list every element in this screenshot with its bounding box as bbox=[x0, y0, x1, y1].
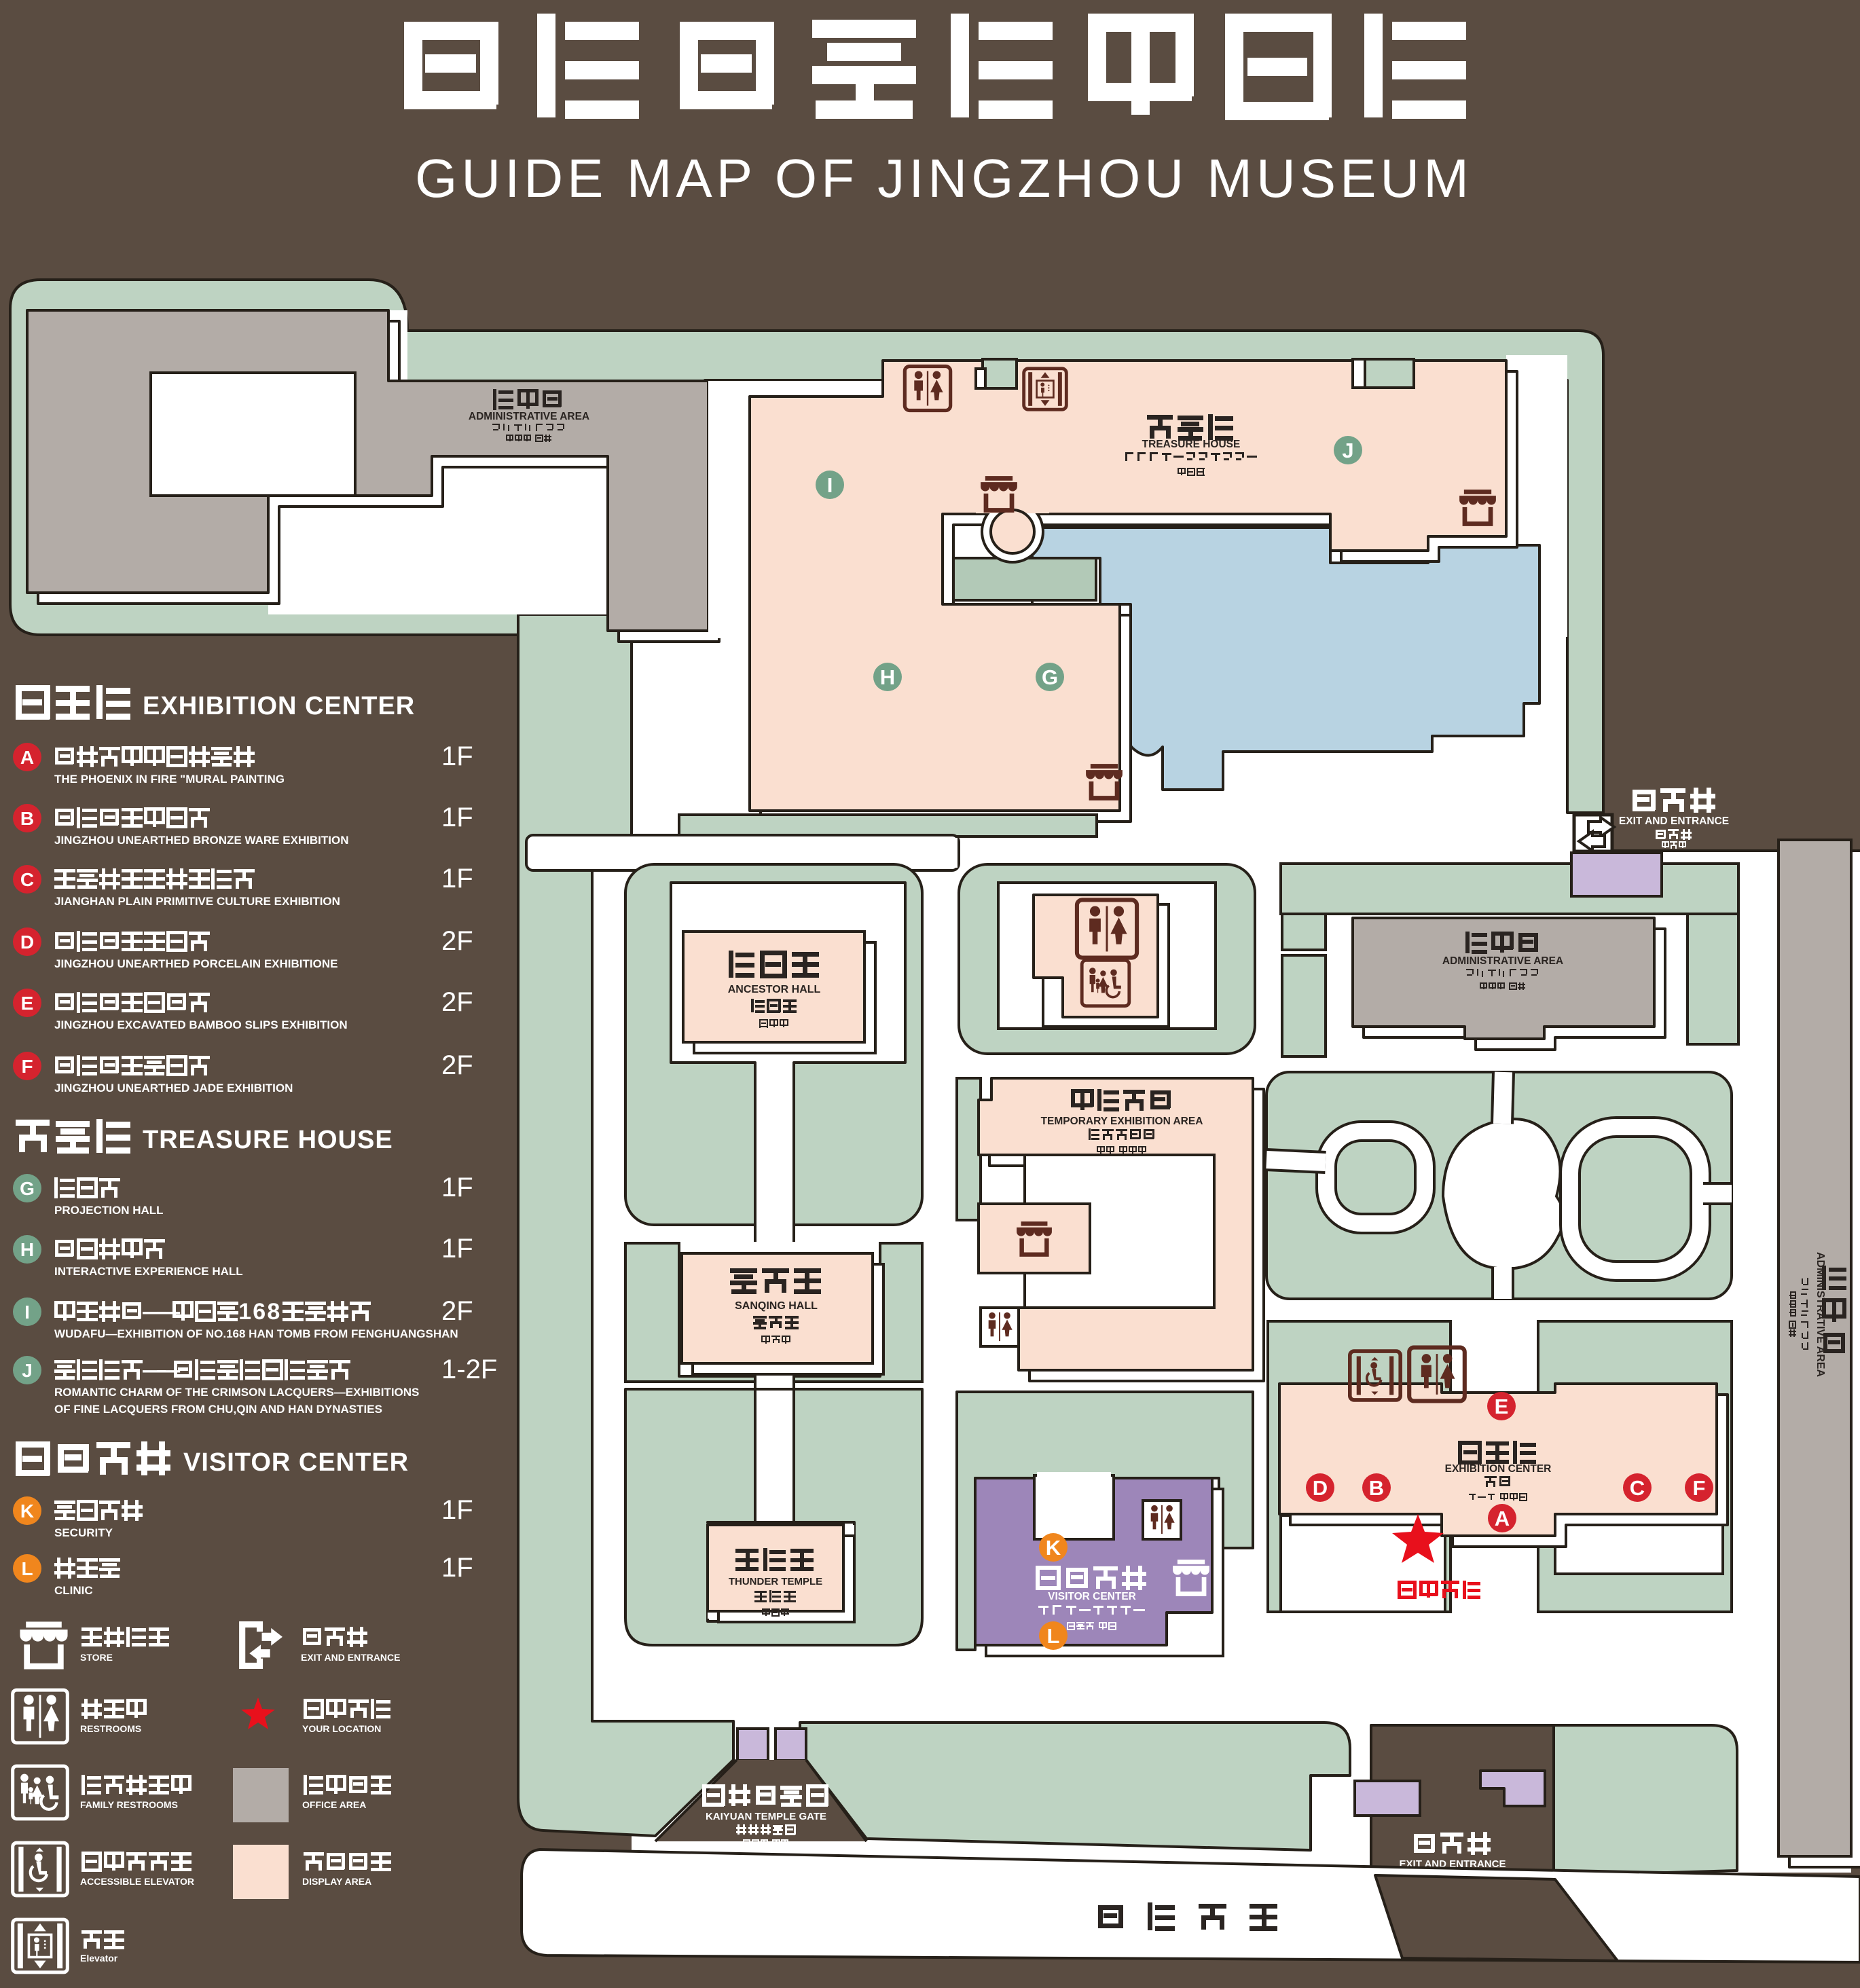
svg-text:VISITOR CENTER: VISITOR CENTER bbox=[183, 1448, 409, 1477]
svg-text:JINGZHOU EXCAVATED BAMBOO SLIP: JINGZHOU EXCAVATED BAMBOO SLIPS EXHIBITI… bbox=[54, 1018, 348, 1031]
svg-text:K: K bbox=[1046, 1536, 1061, 1560]
svg-text:THUNDER TEMPLE: THUNDER TEMPLE bbox=[729, 1576, 822, 1587]
svg-text:FAMILY RESTROOMS: FAMILY RESTROOMS bbox=[80, 1799, 178, 1810]
svg-text:G: G bbox=[20, 1178, 35, 1199]
svg-text:L: L bbox=[1047, 1624, 1060, 1648]
svg-text:C: C bbox=[20, 869, 34, 890]
svg-text:VISITOR CENTER: VISITOR CENTER bbox=[1048, 1591, 1136, 1602]
svg-text:PROJECTION HALL: PROJECTION HALL bbox=[54, 1204, 164, 1217]
svg-text:1F: 1F bbox=[441, 1495, 473, 1525]
svg-text:C: C bbox=[1630, 1476, 1645, 1500]
svg-text:2F: 2F bbox=[441, 1050, 473, 1080]
svg-text:F: F bbox=[1693, 1476, 1706, 1500]
svg-text:Elevator: Elevator bbox=[80, 1953, 118, 1964]
svg-text:E: E bbox=[21, 993, 34, 1014]
svg-text:F: F bbox=[21, 1056, 33, 1077]
svg-text:A: A bbox=[1495, 1507, 1510, 1530]
svg-text:SANQING HALL: SANQING HALL bbox=[735, 1300, 818, 1312]
svg-text:K: K bbox=[20, 1501, 34, 1522]
svg-text:1F: 1F bbox=[441, 741, 473, 771]
svg-text:J: J bbox=[1342, 439, 1353, 462]
svg-text:D: D bbox=[1313, 1476, 1328, 1500]
svg-text:1F: 1F bbox=[441, 1553, 473, 1583]
svg-text:6: 6 bbox=[253, 1299, 266, 1325]
svg-text:B: B bbox=[1369, 1476, 1384, 1500]
svg-text:1: 1 bbox=[238, 1299, 251, 1325]
svg-text:1F: 1F bbox=[441, 1173, 473, 1202]
svg-text:JIANGHAN PLAIN PRIMITIVE CULTU: JIANGHAN PLAIN PRIMITIVE CULTURE EXHIBIT… bbox=[54, 895, 340, 908]
svg-text:OF FINE LACQUERS FROM CHU,QIN: OF FINE LACQUERS FROM CHU,QIN AND HAN DY… bbox=[54, 1403, 382, 1416]
svg-text:2F: 2F bbox=[441, 926, 473, 956]
svg-text:RESTROOMS: RESTROOMS bbox=[80, 1723, 141, 1734]
svg-text:ANCESTOR HALL: ANCESTOR HALL bbox=[728, 984, 821, 995]
svg-text:GUIDE MAP OF JINGZHOU MUSEUM: GUIDE MAP OF JINGZHOU MUSEUM bbox=[415, 148, 1473, 208]
svg-text:ADMINISTRATIVE AREA: ADMINISTRATIVE AREA bbox=[469, 411, 589, 422]
svg-text:INTERACTIVE EXPERIENCE HALL: INTERACTIVE EXPERIENCE HALL bbox=[54, 1265, 243, 1278]
svg-text:ADMINISTRATIVE AREA: ADMINISTRATIVE AREA bbox=[1442, 955, 1563, 967]
svg-text:JINGZHOU UNEARTHED BRONZE WARE: JINGZHOU UNEARTHED BRONZE WARE EXHIBITIO… bbox=[54, 834, 349, 847]
svg-text:D: D bbox=[20, 932, 34, 953]
svg-text:TREASURE HOUSE: TREASURE HOUSE bbox=[1142, 439, 1241, 450]
svg-text:1F: 1F bbox=[441, 803, 473, 832]
svg-text:EXIT AND ENTRANCE: EXIT AND ENTRANCE bbox=[1619, 815, 1729, 827]
svg-text:TEMPORARY EXHIBITION AREA: TEMPORARY EXHIBITION AREA bbox=[1041, 1116, 1203, 1127]
svg-text:OFFICE AREA: OFFICE AREA bbox=[302, 1799, 366, 1810]
svg-text:ACCESSIBLE ELEVATOR: ACCESSIBLE ELEVATOR bbox=[80, 1876, 194, 1887]
svg-text:JINGZHOU UNEARTHED JADE EXHIBI: JINGZHOU UNEARTHED JADE EXHIBITION bbox=[54, 1082, 293, 1094]
svg-text:2F: 2F bbox=[441, 1296, 473, 1326]
svg-text:TREASURE HOUSE: TREASURE HOUSE bbox=[143, 1126, 393, 1154]
svg-text:ADMINISTRATIVE AREA: ADMINISTRATIVE AREA bbox=[1815, 1252, 1826, 1377]
svg-text:B: B bbox=[20, 808, 34, 829]
svg-text:SECURITY: SECURITY bbox=[54, 1526, 113, 1539]
svg-text:THE PHOENIX IN FIRE "MURAL PAI: THE PHOENIX IN FIRE "MURAL PAINTING bbox=[54, 773, 285, 786]
svg-text:DISPLAY AREA: DISPLAY AREA bbox=[302, 1876, 371, 1887]
svg-text:I: I bbox=[24, 1302, 30, 1323]
svg-text:8: 8 bbox=[267, 1299, 280, 1325]
svg-text:ROMANTIC CHARM OF THE CRIMSON: ROMANTIC CHARM OF THE CRIMSON LACQUERS—E… bbox=[54, 1386, 419, 1399]
svg-text:1F: 1F bbox=[441, 1234, 473, 1264]
svg-text:A: A bbox=[20, 747, 34, 768]
svg-text:L: L bbox=[21, 1558, 33, 1579]
svg-text:EXIT AND ENTRANCE: EXIT AND ENTRANCE bbox=[301, 1652, 401, 1663]
svg-text:1-2F: 1-2F bbox=[441, 1355, 497, 1384]
svg-text:J: J bbox=[22, 1360, 33, 1381]
svg-text:1F: 1F bbox=[441, 864, 473, 894]
svg-text:I: I bbox=[827, 473, 833, 497]
svg-text:STORE: STORE bbox=[80, 1652, 113, 1663]
svg-text:E: E bbox=[1495, 1395, 1509, 1418]
svg-text:2F: 2F bbox=[441, 987, 473, 1017]
svg-text:WUDAFU—EXHIBITION OF NO.168 HA: WUDAFU—EXHIBITION OF NO.168 HAN TOMB FRO… bbox=[54, 1327, 458, 1340]
svg-text:CLINIC: CLINIC bbox=[54, 1584, 93, 1597]
svg-text:KAIYUAN TEMPLE GATE: KAIYUAN TEMPLE GATE bbox=[706, 1811, 826, 1822]
svg-text:H: H bbox=[880, 665, 895, 689]
svg-text:JINGZHOU UNEARTHED PORCELAIN E: JINGZHOU UNEARTHED PORCELAIN EXHIBITIONE bbox=[54, 957, 338, 970]
svg-text:H: H bbox=[20, 1239, 34, 1260]
svg-text:EXHIBITION CENTER: EXHIBITION CENTER bbox=[143, 692, 415, 720]
svg-text:G: G bbox=[1042, 665, 1058, 689]
svg-text:EXHIBITION CENTER: EXHIBITION CENTER bbox=[1445, 1463, 1552, 1475]
svg-text:YOUR LOCATION: YOUR LOCATION bbox=[302, 1723, 381, 1734]
